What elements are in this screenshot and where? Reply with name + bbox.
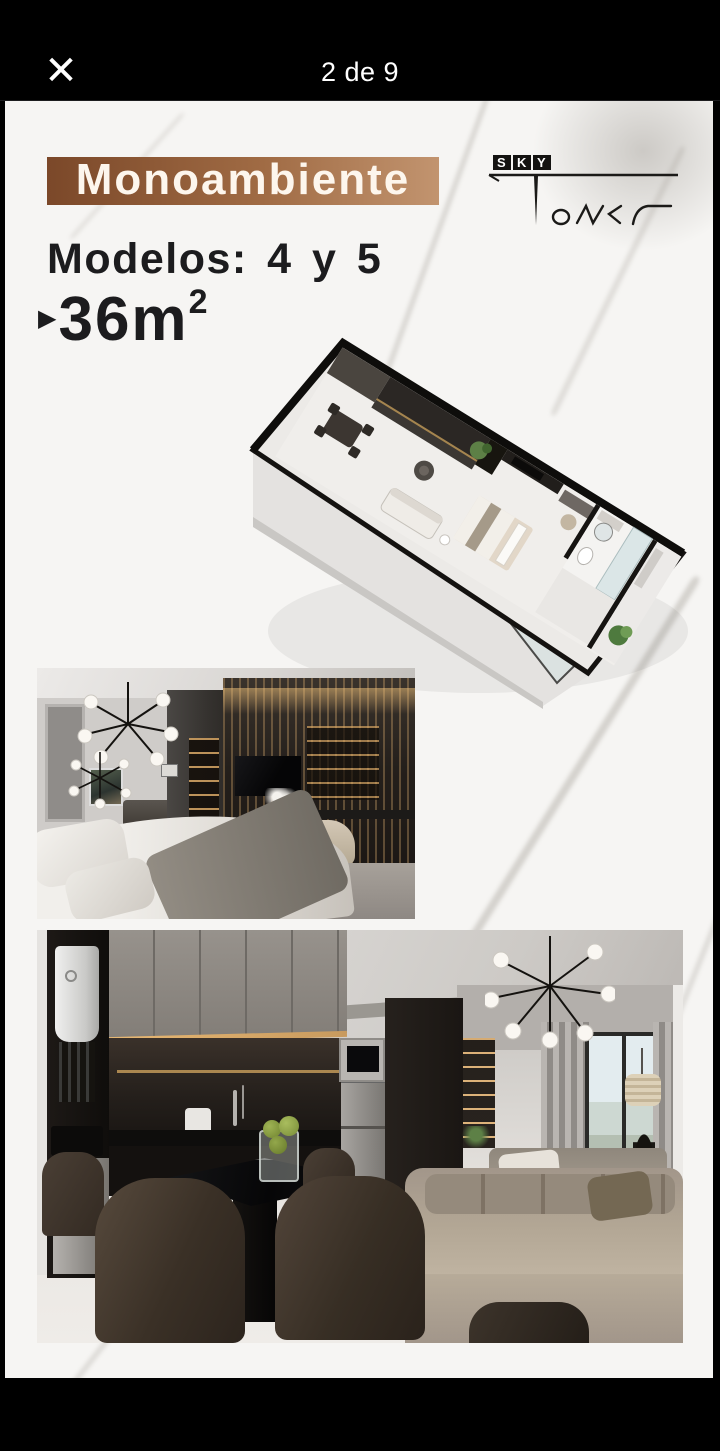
- logo-letter-k: K: [517, 155, 527, 170]
- photo2-heater-pipes: [59, 1042, 95, 1102]
- photo2-upper-cabinets: [109, 930, 347, 1042]
- photo2-faucet: [233, 1090, 237, 1126]
- photo2-pendant-lamp: [625, 1074, 661, 1106]
- photo2-sofa-pillow: [586, 1170, 654, 1222]
- photo2-fridge-divider: [341, 1126, 385, 1129]
- interior-photo-bedroom: [37, 668, 415, 919]
- photo2-water-heater: [55, 946, 99, 1042]
- logo-letter-s: S: [497, 155, 506, 170]
- banner-title: Monoambiente: [47, 157, 439, 205]
- photo2-pendant-cord: [641, 1048, 643, 1076]
- photo2-apple: [269, 1136, 287, 1154]
- photo1-shelves: [307, 726, 379, 800]
- flyer-image[interactable]: Monoambiente S K Y: [5, 101, 713, 1378]
- photo2-chair-back-left: [42, 1152, 104, 1236]
- photo2-backsplash: [109, 1038, 347, 1138]
- area-label: ▶ 36m 2: [38, 287, 207, 353]
- photo2-chair-front-left: [95, 1178, 245, 1343]
- page-counter: 2 de 9: [0, 57, 720, 88]
- viewer-top-bar: ✕ 2 de 9: [0, 0, 720, 101]
- triangle-bullet-icon: ▶: [38, 287, 56, 351]
- photo2-shelf-light: [117, 1070, 339, 1073]
- area-value: 36m: [58, 287, 188, 353]
- photo2-chair-corner: [469, 1302, 589, 1343]
- photo1-cove-light: [223, 688, 415, 714]
- floor-plan-render: [243, 331, 709, 719]
- photo2-apple: [279, 1116, 299, 1136]
- photo2-heater-dial: [65, 970, 77, 982]
- models-label: Modelos: 4 y 5: [47, 235, 382, 284]
- sky-tower-logo-graphic: S K Y: [485, 151, 685, 236]
- image-viewer: ✕ 2 de 9 Monoambiente S K Y: [0, 0, 720, 1451]
- photo2-chandelier-icon: [485, 936, 615, 1056]
- banner-title-text: Monoambiente: [76, 155, 410, 205]
- photo2-chair-front-right: [275, 1176, 425, 1340]
- interior-photo-kitchen: [37, 930, 683, 1343]
- viewer-bottom-bar: [0, 1378, 720, 1451]
- photo1-chandelier-small-icon: [65, 752, 135, 812]
- photo2-small-plant: [461, 1126, 491, 1148]
- logo-letter-y: Y: [537, 155, 546, 170]
- sky-tower-logo: S K Y: [485, 151, 685, 236]
- photo2-microwave-window: [347, 1046, 379, 1072]
- area-exponent: 2: [189, 285, 208, 319]
